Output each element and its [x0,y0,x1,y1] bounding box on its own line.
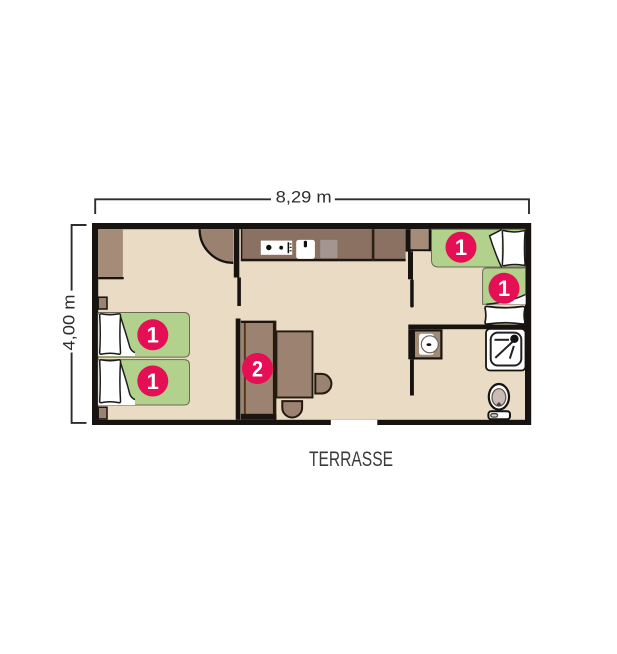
svg-text:TERRASSE: TERRASSE [309,446,393,471]
svg-text:1: 1 [498,276,510,301]
svg-text:8,29 m: 8,29 m [276,188,332,206]
svg-text:1: 1 [147,323,159,348]
svg-text:1: 1 [455,235,467,260]
svg-text:2: 2 [252,356,263,381]
svg-text:1: 1 [147,369,159,394]
svg-text:4,00 m: 4,00 m [60,295,78,351]
